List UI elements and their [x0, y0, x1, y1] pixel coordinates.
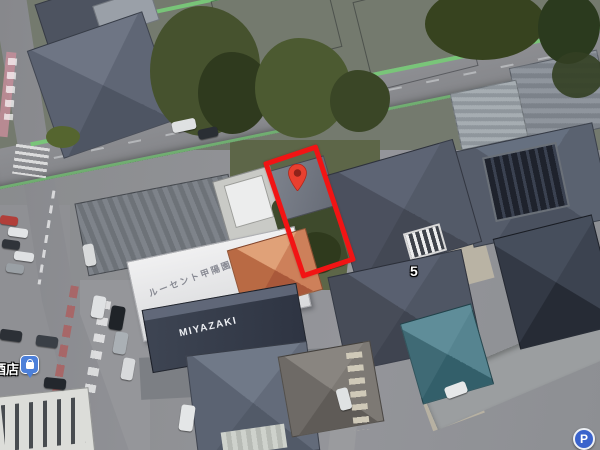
tree-overhanging-road — [552, 52, 600, 98]
store-label[interactable]: 酒店 — [0, 359, 19, 378]
roof-vents — [1, 397, 85, 450]
car-dark — [43, 377, 66, 390]
parking-icon[interactable]: P — [573, 428, 595, 450]
red-map-pin-icon[interactable] — [288, 164, 307, 191]
block-number-label: 5 — [410, 263, 418, 279]
building-commercial-bottomleft — [0, 387, 95, 450]
shopping-bag-icon — [26, 362, 34, 369]
car-white — [178, 404, 195, 432]
satellite-map[interactable]: ルーセント甲陽園 MIYAZAKI 酒店 5 P — [0, 0, 600, 450]
roof-sign-miyazaki: MIYAZAKI — [178, 315, 238, 339]
roof-sign-lucent: ルーセント甲陽園 — [147, 257, 234, 299]
crosswalk — [12, 144, 50, 178]
store-marker-pin[interactable] — [20, 355, 39, 374]
house-roof-far-right-dark — [493, 214, 600, 349]
rooftop-box — [224, 175, 275, 228]
